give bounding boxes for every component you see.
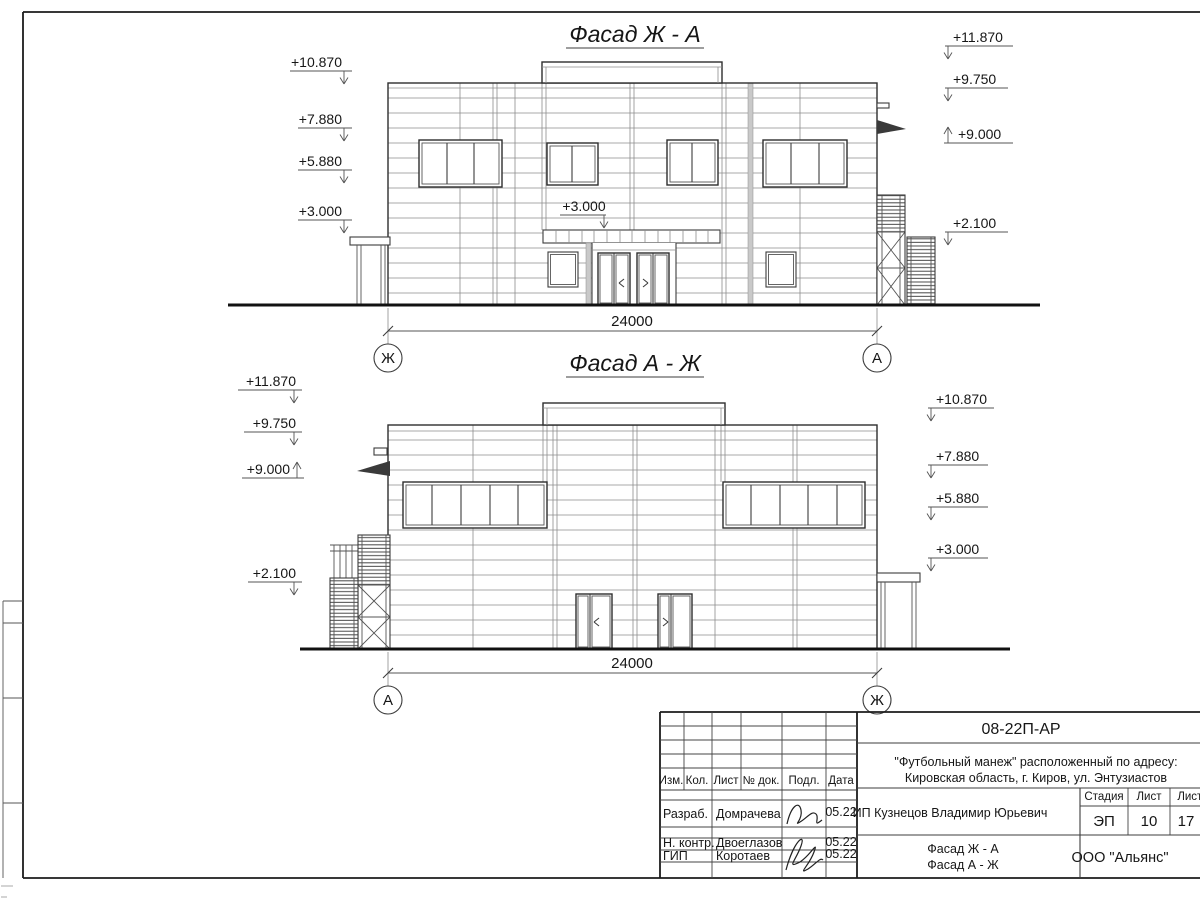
content-line2: Фасад А - Ж bbox=[927, 858, 999, 872]
elevation-mark: +2.100 bbox=[253, 565, 296, 581]
facade1-fire-escape-lower bbox=[907, 237, 935, 305]
facade1-side-window-left bbox=[548, 252, 578, 287]
facade1-side-window-right bbox=[766, 252, 796, 287]
facade1-roof-bracket bbox=[877, 103, 889, 108]
col-date: Дата bbox=[828, 775, 854, 787]
row-role: ГИП bbox=[663, 849, 688, 863]
elevation-mark: +2.100 bbox=[953, 215, 996, 231]
elevation-mark: +7.880 bbox=[936, 448, 979, 464]
facade2-fire-escape-tower bbox=[358, 535, 390, 649]
elevation-mark: +9.750 bbox=[253, 415, 296, 431]
elevation-mark: +9.000 bbox=[958, 126, 1001, 142]
col-izm: Изм. bbox=[659, 775, 684, 787]
organization-name: ООО "Альянс" bbox=[1072, 850, 1169, 866]
facade1-window-3 bbox=[667, 140, 718, 185]
facade1-dimension-text: 24000 bbox=[611, 313, 653, 330]
facade2-roof-bracket bbox=[374, 448, 387, 455]
facade1-axis-right: А bbox=[863, 344, 891, 372]
facade1-window-2 bbox=[547, 143, 598, 185]
facade1-axis-left: Ж bbox=[374, 344, 402, 372]
row-name: Коротаев bbox=[716, 849, 770, 863]
facade2-title: Фасад А - Ж bbox=[569, 350, 702, 376]
facade1-axis-right-label: А bbox=[872, 350, 882, 367]
col-sign: Подл. bbox=[788, 775, 819, 787]
stage-value: ЭП bbox=[1093, 813, 1115, 830]
facade1-title: Фасад Ж - А bbox=[569, 21, 700, 47]
sheets-label: Листов bbox=[1177, 791, 1200, 803]
facade1-fire-escape-upper bbox=[877, 195, 905, 305]
facade1-axis-left-label: Ж bbox=[381, 350, 395, 367]
elevation-mark: +9.750 bbox=[953, 71, 996, 87]
sheet-value: 10 bbox=[1141, 813, 1158, 830]
project-line1: "Футбольный манеж" расположенный по адре… bbox=[894, 755, 1177, 769]
client-name: ИП Кузнецов Владимир Юрьевич bbox=[853, 806, 1048, 820]
elevation-mark: +7.880 bbox=[299, 111, 342, 127]
facade2-door-1 bbox=[576, 594, 612, 649]
row-name: Двоеглазов bbox=[716, 836, 783, 850]
sheets-value: 17 bbox=[1178, 813, 1195, 830]
facade2-door-2 bbox=[658, 594, 692, 649]
facade2-fire-escape-lower bbox=[330, 578, 358, 649]
content-line1: Фасад Ж - А bbox=[927, 842, 999, 856]
elevation-mark: +10.870 bbox=[936, 391, 987, 407]
facade1-parapet bbox=[542, 62, 722, 83]
facade2-axis-right-label: Ж bbox=[870, 692, 884, 709]
elevation-mark: +10.870 bbox=[291, 54, 342, 70]
facade2-axis-left-label: А bbox=[383, 692, 393, 709]
row-date: 05.22 bbox=[825, 847, 856, 861]
elevation-mark: +9.000 bbox=[247, 461, 290, 477]
elevation-mark: +11.870 bbox=[953, 29, 1003, 45]
facade1-door-1 bbox=[598, 253, 630, 305]
stage-label: Стадия bbox=[1084, 791, 1123, 803]
row-role: Н. контр. bbox=[663, 836, 715, 850]
col-doc: № док. bbox=[743, 775, 780, 787]
elevation-mark: +3.000 bbox=[562, 198, 605, 214]
facade2-window-2 bbox=[723, 482, 865, 528]
facade1-entrance-canopy bbox=[543, 230, 720, 243]
sheet-label: Лист bbox=[1137, 791, 1163, 803]
facade1-window-1 bbox=[419, 140, 502, 187]
facade2-axis-left: А bbox=[374, 686, 402, 714]
drawing-canvas: Фасад Ж - А bbox=[0, 0, 1200, 900]
col-list: Лист bbox=[714, 775, 740, 787]
elevation-mark: +3.000 bbox=[299, 203, 342, 219]
elevation-mark: +5.880 bbox=[936, 490, 979, 506]
elevation-mark: +5.880 bbox=[299, 153, 342, 169]
col-kol: Кол. bbox=[686, 775, 709, 787]
row-role: Разраб. bbox=[663, 807, 708, 821]
facade1-column-strip bbox=[748, 83, 753, 305]
drawing-sheet: Фасад Ж - А bbox=[0, 0, 1200, 900]
facade2-axis-right: Ж bbox=[863, 686, 891, 714]
facade1-door-2 bbox=[637, 253, 669, 305]
elevation-mark: +11.870 bbox=[246, 373, 296, 389]
row-name: Домрачева bbox=[716, 807, 781, 821]
facade2-dimension-text: 24000 bbox=[611, 655, 653, 672]
facade1-window-4 bbox=[763, 140, 847, 187]
doc-code: 08-22П-АР bbox=[981, 721, 1060, 738]
facade2-parapet bbox=[543, 403, 725, 425]
elevation-mark: +3.000 bbox=[936, 541, 979, 557]
facade2-window-1 bbox=[403, 482, 547, 528]
project-line2: Кировская область, г. Киров, ул. Энтузиа… bbox=[905, 771, 1167, 785]
